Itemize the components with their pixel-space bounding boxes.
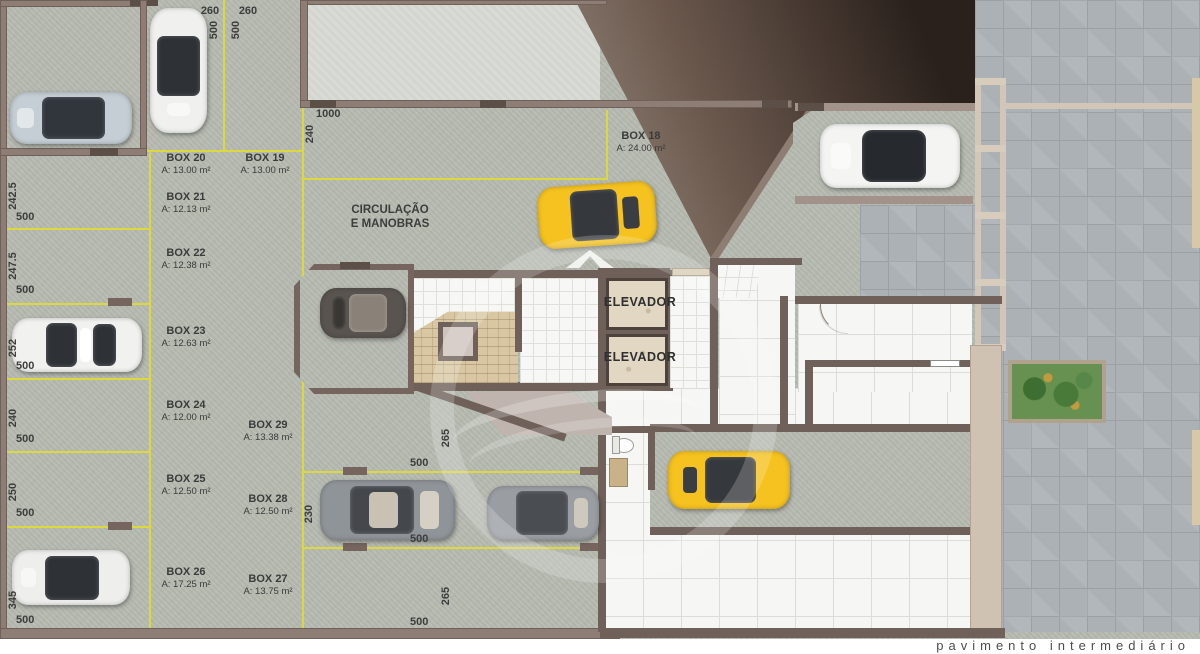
wall-top-left [0,0,145,7]
stall-line [7,451,150,453]
wall-stub [343,543,367,551]
car-white-sports-top-right [820,124,960,188]
dim-mid-3: 265 [440,578,452,614]
box-label-19: BOX 19A: 13.00 m² [222,152,308,176]
stall-line [7,228,150,230]
wall-left [0,0,7,632]
box-label-27: BOX 27A: 13.75 m² [225,573,311,597]
box-label-24: BOX 24A: 12.00 m² [143,399,229,423]
stall-line [223,0,225,150]
dim-left-6-w: 500 [16,614,34,626]
dim-left-1-w: 500 [16,211,34,223]
stall-top-right-wall-bottom [795,196,973,204]
edge-strip [1192,430,1200,525]
beam-line [1006,103,1200,109]
edge-strip [1192,78,1200,248]
dim-top-2-dep: 500 [230,12,242,48]
box-label-26: BOX 26A: 17.25 m² [143,566,229,590]
car-dark-convertible [320,288,406,338]
box-label-22: BOX 22A: 12.38 m² [143,247,229,271]
wall-tab [90,148,118,156]
plan-title: pavimento intermediário [690,638,1190,653]
car-white-bottom-left [12,550,130,605]
dim-top-1-dep: 500 [208,12,220,48]
dim-left-5-w: 500 [16,507,34,519]
trellis-rung [975,212,1006,219]
box18-outline-bottom [302,178,608,180]
box-label-23: BOX 23A: 12.63 m² [143,325,229,349]
paver-terrace [975,0,1200,632]
dim-left-3-w: 500 [16,360,34,372]
ramp-area [308,4,600,100]
dim-ramp-dep: 240 [304,116,316,152]
dim-mid-3-w: 500 [410,616,428,628]
box-label-29: BOX 29A: 13.38 m² [225,419,311,443]
lobby-wall-stub [515,278,522,352]
door-leaf [930,360,960,367]
unit-garage-wall-bottom [650,527,1002,535]
wall-tab [798,103,824,111]
dim-mid-1: 265 [440,420,452,456]
circulation-label: CIRCULAÇÃO E MANOBRAS [325,203,455,232]
room-wall-v [805,360,813,430]
car-white-top-vertical [150,8,207,133]
unit-wall-top [795,296,1002,304]
core-right-wall-top [710,258,802,265]
dim-mid-2: 230 [303,496,315,532]
wall-tab [310,100,336,108]
wall-tab [340,262,370,269]
lobby-floor [520,278,600,383]
floor-plan-canvas: BOX 18A: 24.00 m² BOX 20A: 13.00 m² BOX … [0,0,1200,654]
wall-stall-divider [140,0,147,156]
wall-bottom [0,628,620,639]
unit-garage-wall-top [650,424,1002,432]
wall-stub [343,467,367,475]
trellis-rung [975,279,1006,286]
wall-ramp-bottom [300,100,792,108]
dim-left-4-w: 500 [16,433,34,445]
box-label-18: BOX 18A: 24.00 m² [595,130,687,154]
dim-ramp-len: 1000 [316,108,340,120]
car-suv-gray-2 [487,486,599,540]
bath-wall-right [648,426,655,490]
wall-tab [480,100,506,108]
dim-left-2-w: 500 [16,284,34,296]
box-label-25: BOX 25A: 12.50 m² [143,473,229,497]
wall-ramp-top [300,0,607,5]
car-yellow-center [536,180,658,250]
door-lintel [672,268,710,276]
toilet-tank [612,436,620,454]
stall-line [149,153,151,630]
stall-line [7,378,150,380]
dim-left-2: 247.5 [7,244,19,288]
box-label-21: BOX 21A: 12.13 m² [143,191,229,215]
dim-mid-1-w: 500 [410,457,428,469]
trellis-rung [975,78,1006,85]
garden-planter [1008,360,1106,423]
wall-stub [108,522,132,530]
paver-terrace-left [860,205,975,300]
trellis-rung [975,145,1006,152]
elevator-hall-floor [670,276,710,388]
box-label-20: BOX 20A: 13.00 m² [143,152,229,176]
wall-stall-bottom [0,148,147,156]
sink-cabinet [609,458,628,487]
wall-stub [108,298,132,306]
wall-ramp-left [300,0,308,107]
dim-mid-2-w: 500 [410,533,428,545]
car-suv-gray-1 [320,480,455,540]
unit-wall-mid-v [780,296,788,432]
unit-wall-right-beige [970,345,1002,633]
car-silver-top-left [10,92,132,144]
wall-tab [762,100,788,108]
core-right-wall-left [710,258,718,432]
stair-landing [438,322,478,361]
car-yellow-unit [668,451,790,509]
unit-wall-bottom [600,628,1005,638]
elevator-label-2: ELEVADOR [598,350,682,364]
box-label-28: BOX 28A: 12.50 m² [225,493,311,517]
elevator-label-1: ELEVADOR [598,295,682,309]
